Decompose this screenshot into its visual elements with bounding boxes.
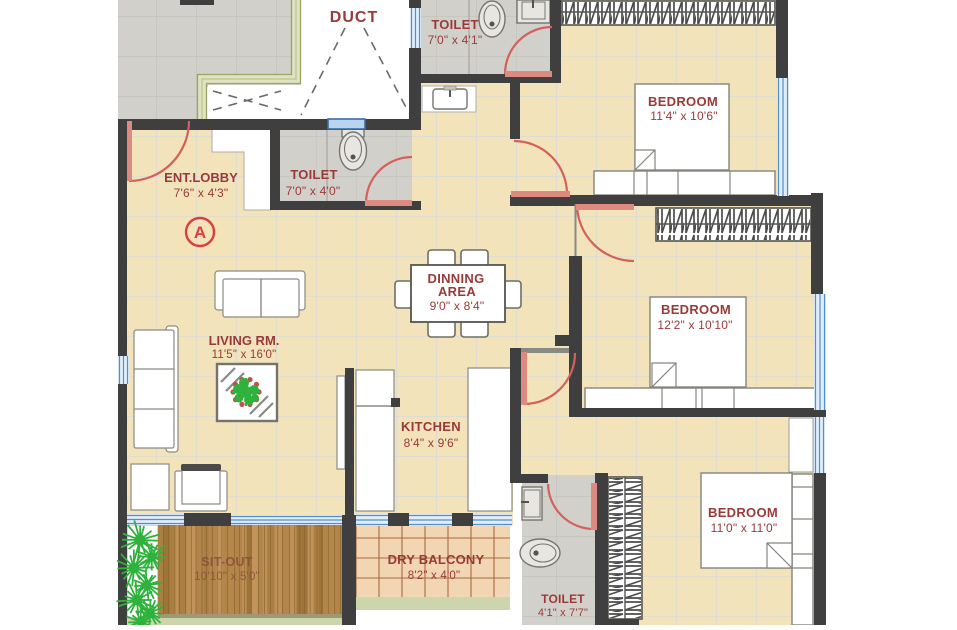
svg-text:BEDROOM: BEDROOM bbox=[648, 94, 718, 109]
svg-text:DUCT: DUCT bbox=[330, 9, 378, 26]
svg-text:TOILET: TOILET bbox=[290, 167, 337, 182]
svg-text:AREA: AREA bbox=[438, 284, 476, 299]
svg-text:SIT-OUT: SIT-OUT bbox=[201, 555, 252, 569]
svg-text:9'0" x 8'4": 9'0" x 8'4" bbox=[430, 299, 485, 313]
svg-text:BEDROOM: BEDROOM bbox=[708, 505, 778, 520]
svg-text:11'5" x 16'0": 11'5" x 16'0" bbox=[212, 349, 277, 361]
svg-text:TOILET: TOILET bbox=[431, 17, 478, 32]
svg-text:10'10" x 5'0": 10'10" x 5'0" bbox=[194, 571, 260, 583]
svg-text:8'4" x 9'6": 8'4" x 9'6" bbox=[404, 436, 459, 450]
svg-text:TOILET: TOILET bbox=[541, 592, 585, 606]
svg-text:ENT.LOBBY: ENT.LOBBY bbox=[164, 170, 238, 185]
svg-text:11'0" x 11'0": 11'0" x 11'0" bbox=[711, 521, 778, 535]
svg-text:12'2" x 10'10": 12'2" x 10'10" bbox=[657, 318, 732, 332]
svg-text:KITCHEN: KITCHEN bbox=[401, 419, 461, 434]
svg-text:8'2" x 4'0": 8'2" x 4'0" bbox=[408, 570, 460, 582]
svg-text:4'1" x 7'7": 4'1" x 7'7" bbox=[538, 607, 588, 619]
svg-text:11'4" x 10'6": 11'4" x 10'6" bbox=[650, 109, 718, 123]
svg-text:DRY BALCONY: DRY BALCONY bbox=[388, 552, 485, 567]
svg-text:7'0" x 4'0": 7'0" x 4'0" bbox=[286, 184, 341, 198]
svg-text:A: A bbox=[194, 223, 206, 242]
svg-text:7'6" x 4'3": 7'6" x 4'3" bbox=[174, 186, 229, 200]
svg-text:BEDROOM: BEDROOM bbox=[661, 302, 731, 317]
svg-text:LIVING RM.: LIVING RM. bbox=[209, 333, 280, 348]
svg-text:7'0" x 4'1": 7'0" x 4'1" bbox=[428, 33, 483, 47]
